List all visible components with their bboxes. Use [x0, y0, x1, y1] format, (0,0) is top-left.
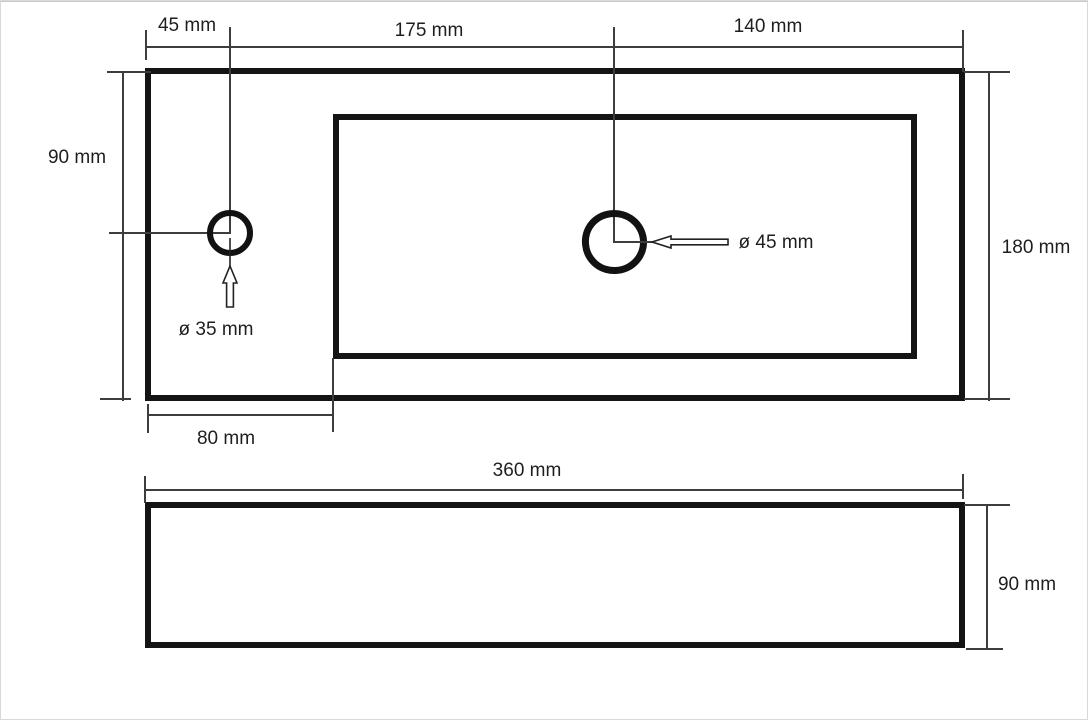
dim-tick-90-front-bottom — [966, 648, 1003, 650]
dim-line-80 — [147, 414, 334, 416]
dim-tick-left-bottom — [100, 398, 131, 400]
dim-label-90-left: 90 mm — [46, 147, 108, 169]
technical-drawing-canvas: 45 mm 175 mm 140 mm 90 mm 180 mm 80 mm ø… — [0, 0, 1088, 720]
front-view-outline — [145, 502, 965, 648]
dim-tick-360-left — [144, 476, 146, 503]
dim-label-175: 175 mm — [393, 20, 466, 42]
dim-label-180: 180 mm — [1000, 237, 1073, 259]
dim-label-140: 140 mm — [732, 16, 805, 38]
dim-extension-faucet-center — [229, 27, 231, 233]
dim-line-top — [146, 46, 964, 48]
dim-tick-left-top — [107, 71, 151, 73]
dim-label-80: 80 mm — [195, 428, 257, 450]
dim-tick-right-top — [964, 71, 1010, 73]
dim-label-faucet-diameter: ø 35 mm — [177, 319, 256, 341]
left-arrow-icon — [651, 235, 729, 249]
dim-tick-80-left — [147, 404, 149, 433]
dim-tick-top-right — [962, 30, 964, 72]
dim-label-drain-diameter: ø 45 mm — [737, 232, 816, 254]
up-arrow-icon — [221, 238, 239, 308]
dim-line-left — [122, 71, 124, 401]
dim-tick-top-left — [145, 30, 147, 60]
dim-label-360: 360 mm — [491, 460, 564, 482]
dim-line-90-front — [986, 504, 988, 650]
dim-label-45: 45 mm — [156, 15, 218, 37]
dim-label-90-front: 90 mm — [996, 574, 1058, 596]
dim-line-360 — [145, 489, 964, 491]
dim-line-right — [988, 71, 990, 401]
dim-tick-right-bottom — [964, 398, 1010, 400]
dim-tick-360-right — [962, 474, 964, 499]
leader-line-drain — [615, 241, 655, 243]
dim-extension-80-right — [332, 358, 334, 432]
dim-tick-90-front-top — [964, 504, 1010, 506]
